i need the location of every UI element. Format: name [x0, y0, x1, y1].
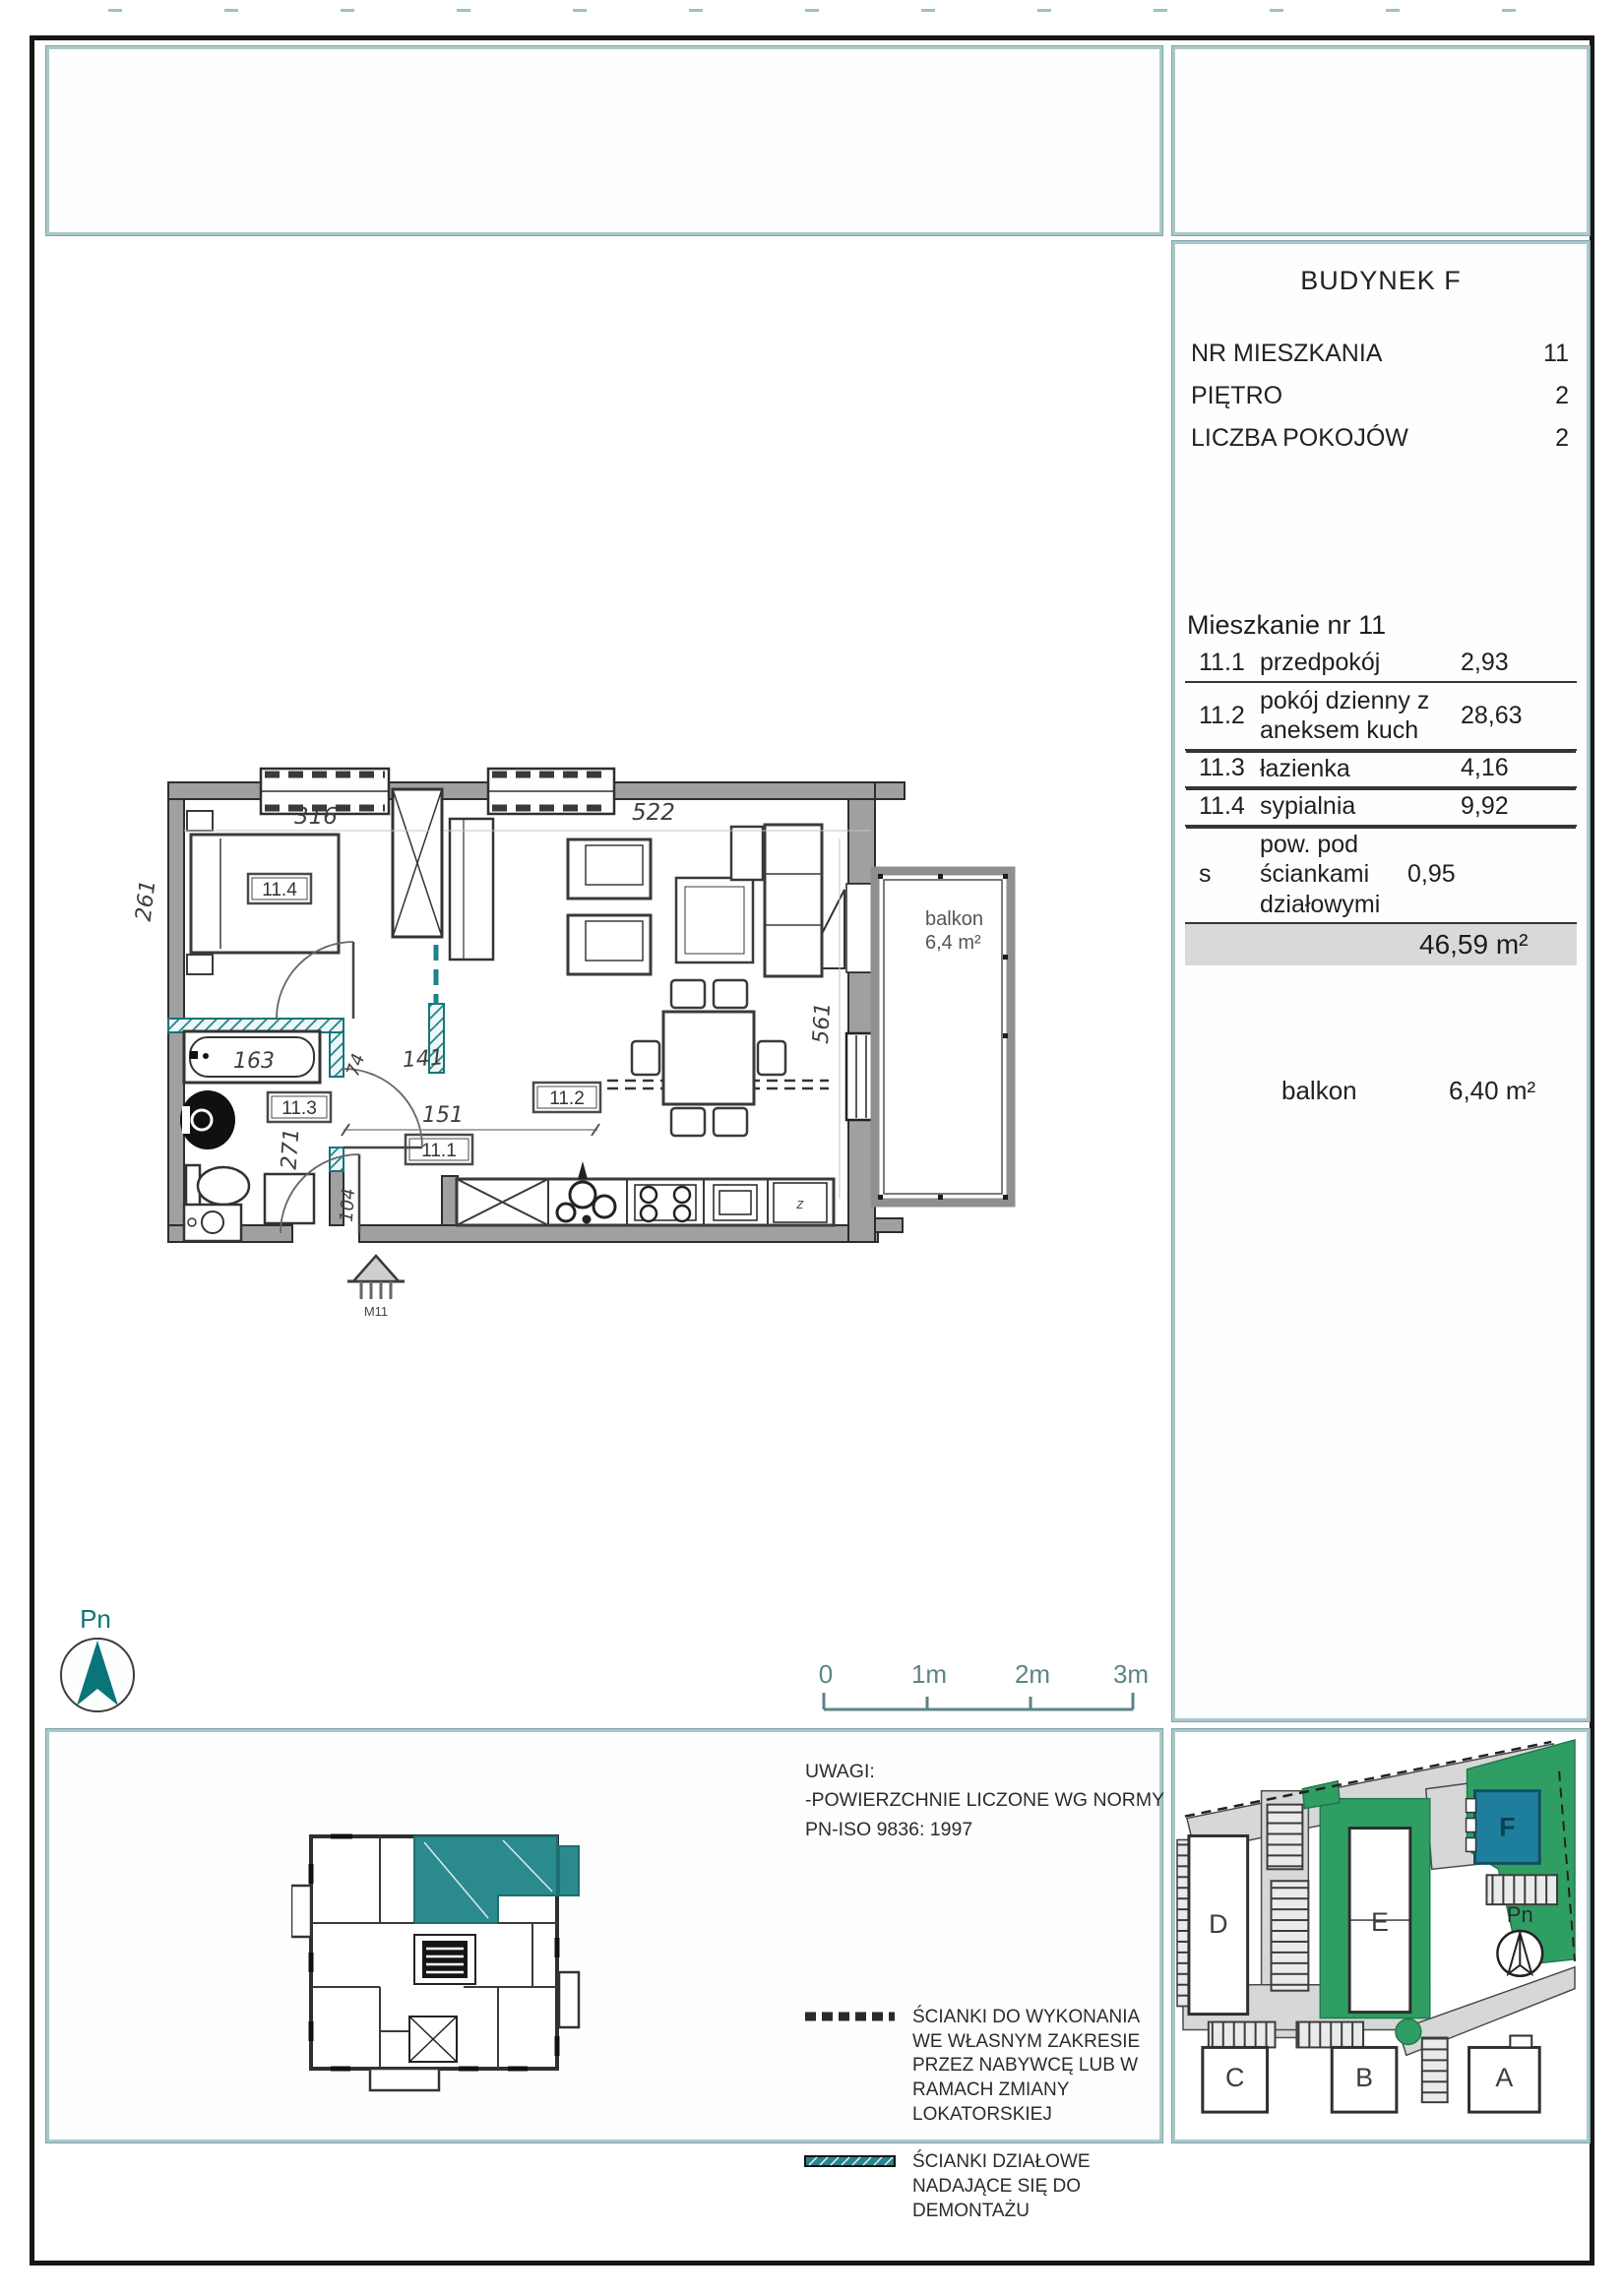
- scan-artifact-marks: [108, 9, 1516, 12]
- notes-line: -POWIERZCHNIE LICZONE WG NORMY: [805, 1786, 1179, 1815]
- svg-text:316: 316: [294, 804, 338, 830]
- entrance-marker: M11: [347, 1256, 405, 1319]
- room-number: 11.2: [1185, 702, 1260, 730]
- balcony-plan-area: 6,4 m²: [925, 932, 981, 954]
- svg-text:11.2: 11.2: [549, 1088, 585, 1109]
- room-label-bathroom: 11.3: [268, 1092, 331, 1122]
- balcony-plan-label: balkon: [925, 908, 983, 930]
- room-label-living: 11.2: [533, 1083, 600, 1112]
- room-name: pokój dzienny z aneksem kuch: [1260, 683, 1461, 749]
- scale-tick-0: 0: [819, 1659, 833, 1689]
- svg-text:163: 163: [233, 1049, 275, 1074]
- field-value: 2: [1555, 424, 1569, 453]
- stove: [635, 1185, 696, 1221]
- room-number: 11.3: [1185, 754, 1260, 782]
- north-label: Pn: [80, 1604, 111, 1634]
- armchairs: [568, 839, 651, 974]
- dashed-wall-symbol: [803, 2009, 897, 2024]
- legend: ŚCIANKI DO WYKONANIA WE WŁASNYM ZAKRESIE…: [803, 2006, 1167, 2248]
- svg-text:11.4: 11.4: [262, 880, 297, 900]
- svg-text:11.3: 11.3: [281, 1098, 317, 1119]
- room-area: 0,95: [1407, 860, 1524, 889]
- fridge: z: [774, 1183, 827, 1222]
- legend-item-demountable-walls: ŚCIANKI DZIAŁOWE NADAJĄCE SIĘ DO DEMONTA…: [803, 2150, 1167, 2223]
- site-plan-drawing: D E F C B: [1175, 1732, 1581, 2134]
- field-apartment-number: NR MIESZKANIA 11: [1191, 340, 1569, 368]
- room-name: przedpokój: [1260, 645, 1461, 681]
- room-name: sypialnia: [1260, 788, 1461, 825]
- building-b: B: [1332, 2047, 1397, 2112]
- legend-text: ŚCIANKI DZIAŁOWE NADAJĄCE SIĘ DO DEMONTA…: [912, 2150, 1167, 2223]
- field-value: 11: [1543, 340, 1569, 368]
- notes-line: UWAGI:: [805, 1758, 1179, 1786]
- north-compass-icon: Pn: [61, 1604, 134, 1711]
- wardrobe: [393, 789, 493, 960]
- svg-text:141: 141: [402, 1045, 445, 1073]
- highlighted-balcony: [559, 1846, 579, 1895]
- hatched-wall-symbol: [803, 2153, 897, 2169]
- apartment-heading: Mieszkanie nr 11: [1187, 610, 1577, 641]
- floor-plan-drawing: balkon 6,4 m² 11.4: [46, 236, 1162, 1727]
- room-name: pow. pod ściankami działowymi: [1260, 827, 1407, 923]
- building-a: A: [1469, 2035, 1540, 2112]
- header-box-right: [1172, 46, 1590, 235]
- apartment-fields: NR MIESZKANIA 11 PIĘTRO 2 LICZBA POKOJÓW…: [1191, 340, 1569, 466]
- dining-table: [632, 980, 785, 1136]
- building-c: C: [1203, 2047, 1268, 2112]
- elevator-core: [414, 1935, 475, 1984]
- balcony-row: balkon 6,40 m²: [1185, 1076, 1577, 1106]
- scale-tick-2m: 2m: [1015, 1659, 1050, 1689]
- site-plan-panel: D E F C B: [1172, 1729, 1590, 2142]
- svg-text:C: C: [1225, 2063, 1244, 2092]
- field-label: PIĘTRO: [1191, 382, 1282, 410]
- svg-text:11.1: 11.1: [421, 1141, 457, 1161]
- table-row-partition-walls: s pow. pod ściankami działowymi 0,95: [1185, 827, 1577, 925]
- building-e: E: [1349, 1829, 1410, 2013]
- building-f-highlighted: F: [1467, 1791, 1540, 1864]
- table-row: 11.4 sypialnia 9,92: [1185, 788, 1577, 827]
- svg-text:74: 74: [343, 1051, 369, 1079]
- svg-text:B: B: [1355, 2063, 1373, 2092]
- notes-line: PN-ISO 9836: 1997: [805, 1816, 1179, 1844]
- entrance-label: M11: [364, 1304, 388, 1319]
- room-label-bedroom: 11.4: [248, 874, 311, 903]
- room-number: 11.4: [1185, 792, 1260, 821]
- svg-text:104: 104: [337, 1188, 359, 1223]
- fridge-letter: z: [795, 1196, 804, 1212]
- scale-tick-3m: 3m: [1113, 1659, 1149, 1689]
- svg-text:D: D: [1209, 1909, 1227, 1939]
- field-room-count: LICZBA POKOJÓW 2: [1191, 424, 1569, 453]
- room-area: 4,16: [1461, 754, 1577, 782]
- floor-overview-plan: [291, 1825, 587, 2100]
- site-north-label: Pn: [1507, 1902, 1533, 1927]
- svg-text:A: A: [1495, 2063, 1513, 2092]
- total-area-row: 46,59 m²: [1185, 924, 1577, 965]
- room-label-hall: 11.1: [406, 1135, 472, 1164]
- balcony-area: 6,40 m²: [1449, 1076, 1577, 1106]
- svg-text:261: 261: [132, 879, 161, 923]
- window-living-room: [488, 769, 614, 814]
- legend-item-buyer-walls: ŚCIANKI DO WYKONANIA WE WŁASNYM ZAKRESIE…: [803, 2006, 1167, 2127]
- svg-text:522: 522: [632, 800, 675, 826]
- kitchen-counter: z: [457, 1161, 834, 1225]
- building-d: D: [1189, 1835, 1248, 2014]
- field-label: LICZBA POKOJÓW: [1191, 424, 1408, 453]
- notes-text: UWAGI: -POWIERZCHNIE LICZONE WG NORMY PN…: [805, 1758, 1179, 1844]
- room-area: 28,63: [1461, 702, 1577, 730]
- room-area: 9,92: [1461, 792, 1577, 821]
- apartment-info-panel: BUDYNEK F NR MIESZKANIA 11 PIĘTRO 2 LICZ…: [1172, 241, 1590, 1721]
- room-number: 11.1: [1185, 649, 1260, 677]
- svg-text:271: 271: [278, 1128, 305, 1171]
- room-area-table: Mieszkanie nr 11 11.1 przedpokój 2,93 11…: [1185, 610, 1577, 965]
- room-area: 2,93: [1461, 649, 1577, 677]
- table-row: 11.2 pokój dzienny z aneksem kuch 28,63: [1185, 683, 1577, 751]
- svg-text:F: F: [1499, 1812, 1515, 1841]
- table-row: 11.3 łazienka 4,16: [1185, 751, 1577, 789]
- washing-machine: [184, 1205, 241, 1241]
- total-area-value: 46,59 m²: [1419, 929, 1577, 961]
- legend-text: ŚCIANKI DO WYKONANIA WE WŁASNYM ZAKRESIE…: [912, 2006, 1167, 2127]
- room-number: s: [1185, 860, 1260, 889]
- building-title: BUDYNEK F: [1175, 266, 1587, 296]
- table-row: 11.1 przedpokój 2,93: [1185, 645, 1577, 683]
- field-label: NR MIESZKANIA: [1191, 340, 1382, 368]
- header-box-left: [46, 46, 1162, 235]
- coffee-table: [676, 878, 753, 962]
- field-floor: PIĘTRO 2: [1191, 382, 1569, 410]
- oven-cabinet: [714, 1185, 757, 1220]
- room-name: łazienka: [1260, 751, 1461, 787]
- scale-bar: 0 1m 2m 3m: [819, 1659, 1149, 1709]
- svg-text:151: 151: [422, 1103, 464, 1128]
- svg-text:E: E: [1371, 1907, 1389, 1937]
- svg-text:561: 561: [809, 1002, 836, 1044]
- field-value: 2: [1555, 382, 1569, 410]
- bathroom-sink: [180, 1090, 235, 1149]
- notes-panel: UWAGI: -POWIERZCHNIE LICZONE WG NORMY PN…: [46, 1729, 1162, 2142]
- apartment-card-page: BUDYNEK F NR MIESZKANIA 11 PIĘTRO 2 LICZ…: [0, 0, 1624, 2296]
- balcony-label: balkon: [1281, 1076, 1449, 1106]
- scale-tick-1m: 1m: [911, 1659, 947, 1689]
- balcony: balkon 6,4 m²: [875, 871, 1011, 1203]
- stairwell: [409, 2017, 457, 2062]
